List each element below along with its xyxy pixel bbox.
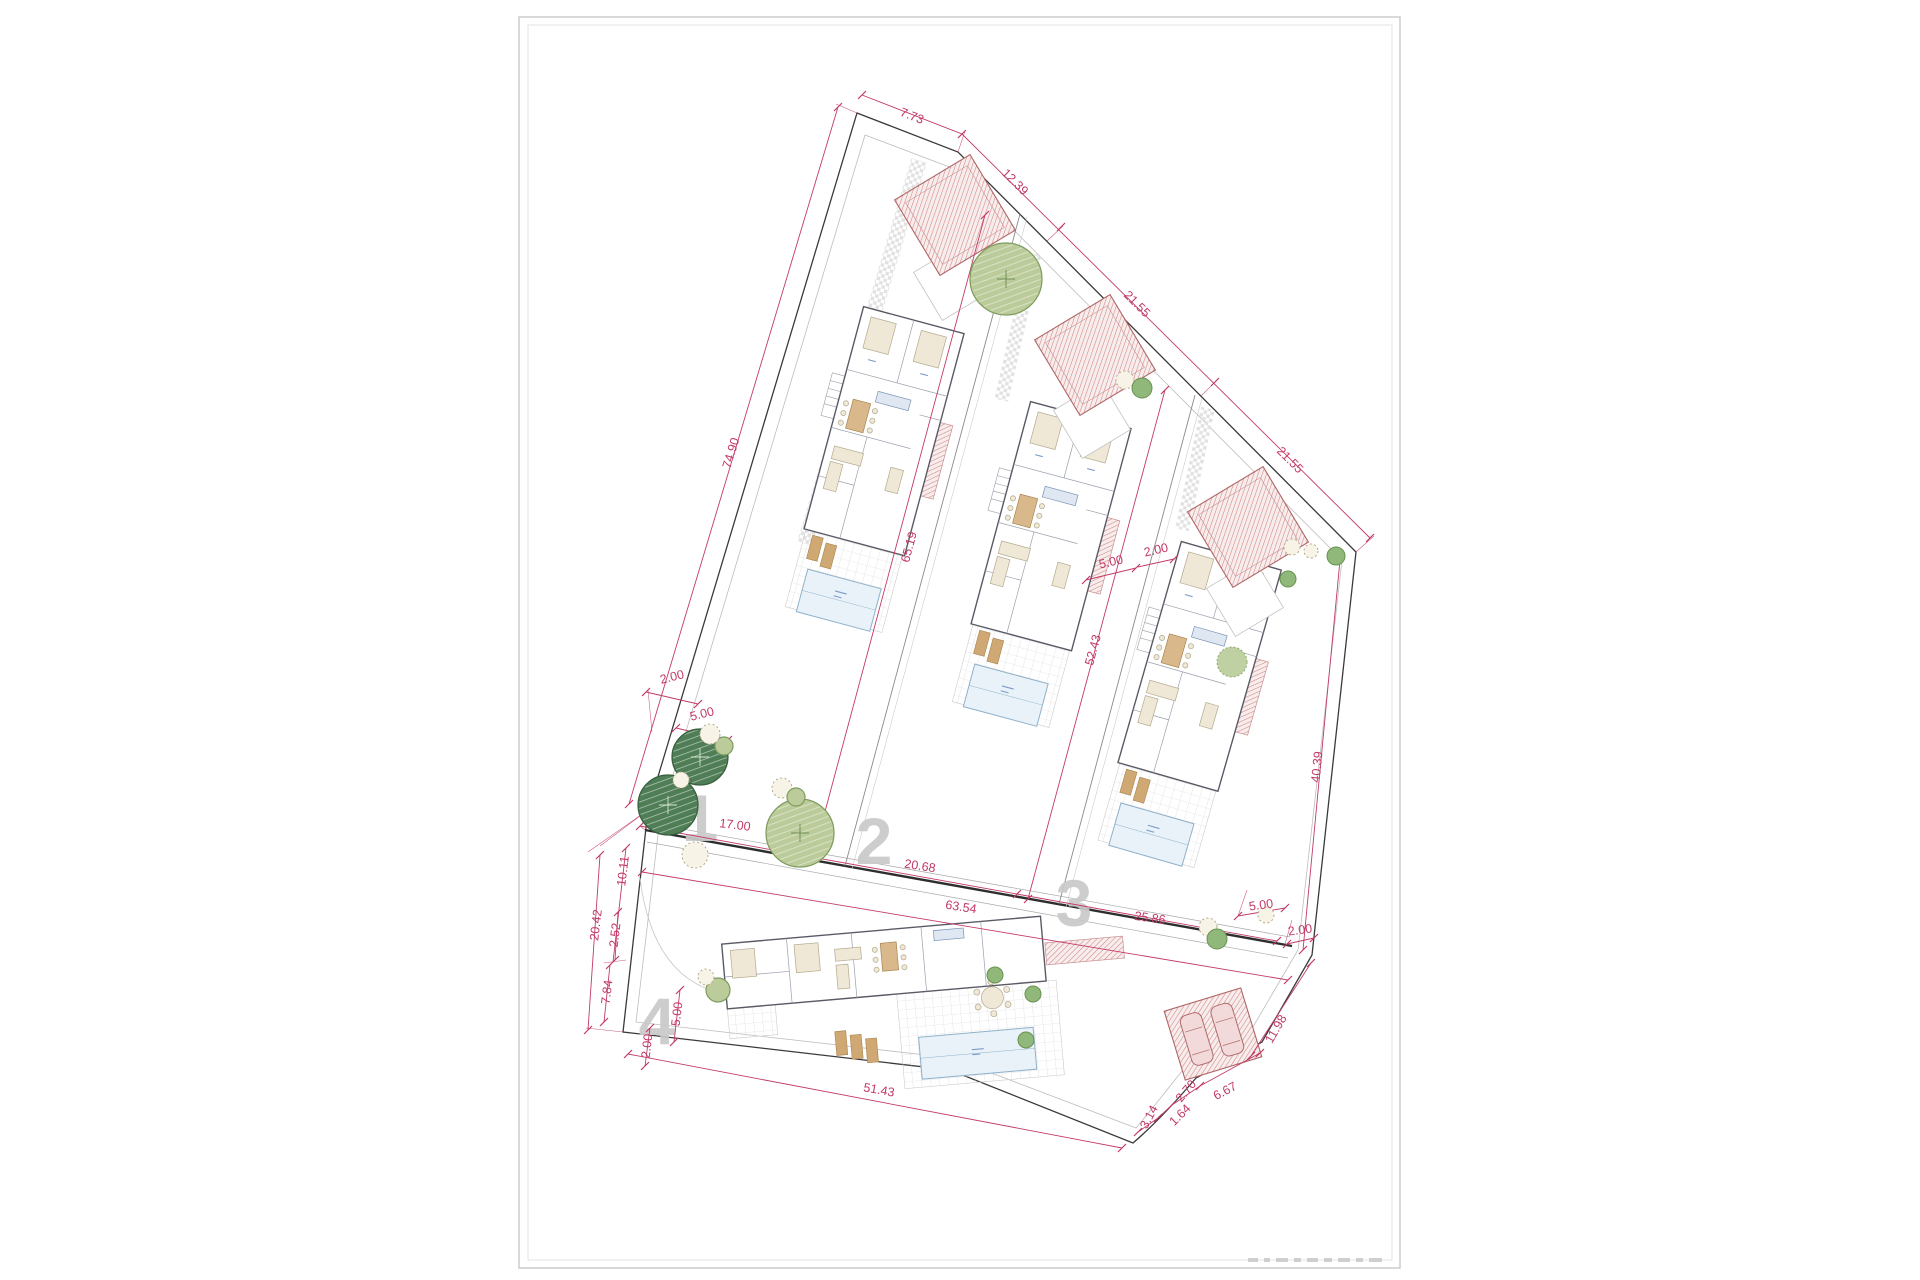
tree-green xyxy=(1280,571,1296,587)
dimension-label: 20.42 xyxy=(587,909,605,942)
dimension-label: 5.00 xyxy=(669,1001,686,1027)
sun-lounger xyxy=(835,1031,848,1056)
bed xyxy=(794,943,820,973)
dimension-label: 10.11 xyxy=(614,855,632,887)
tree-dotted xyxy=(700,724,720,744)
tree-light-large xyxy=(766,799,834,867)
tree-green xyxy=(1327,547,1345,565)
tree-green xyxy=(1025,986,1041,1002)
dimension-label: 6.67 xyxy=(1211,1079,1239,1103)
tree-green xyxy=(1018,1032,1034,1048)
kitchen-island xyxy=(933,928,964,941)
tree-dotted xyxy=(673,772,689,788)
dimension-label: 2.00 xyxy=(639,1033,656,1059)
site-plan-sheet: 1234 xyxy=(0,0,1920,1280)
dimension-label: 7.84 xyxy=(599,979,616,1005)
sun-lounger xyxy=(865,1038,878,1063)
bed xyxy=(730,948,756,978)
dimension-label: 21.55 xyxy=(1274,444,1306,476)
dimension-label: 12.39 xyxy=(999,166,1031,198)
tree-dotted xyxy=(1116,371,1134,389)
sofa xyxy=(835,947,862,961)
dimension-label: 21.55 xyxy=(1121,288,1153,320)
tree-dotted xyxy=(682,842,708,868)
plot-number: 3 xyxy=(1056,866,1093,940)
tree-dotted xyxy=(1284,539,1300,555)
dimension-label: 74.90 xyxy=(720,436,743,470)
tree-green xyxy=(1207,929,1227,949)
tree-dotted xyxy=(698,969,714,985)
dimension-label: 51.43 xyxy=(862,1080,895,1099)
villa-3-courtyard-tree xyxy=(1217,647,1247,677)
tree-dark xyxy=(638,775,698,835)
plot-number: 2 xyxy=(856,804,893,878)
watermark xyxy=(1248,1258,1382,1262)
tree-green xyxy=(1132,378,1152,398)
tree-green xyxy=(987,967,1003,983)
sun-lounger xyxy=(850,1034,863,1059)
dining-table xyxy=(880,942,898,971)
villa-terrace-grid xyxy=(727,1005,777,1039)
dimension-label: 7.73 xyxy=(898,105,926,127)
dimension-label: 2.00 xyxy=(658,667,685,686)
sofa xyxy=(836,964,850,989)
site-plan-drawing: 1234 xyxy=(0,0,1920,1280)
tree-dotted xyxy=(1304,544,1318,558)
dimension-label: 2.52 xyxy=(607,922,624,948)
tree-light-large xyxy=(970,243,1042,315)
tree-light xyxy=(787,788,805,806)
